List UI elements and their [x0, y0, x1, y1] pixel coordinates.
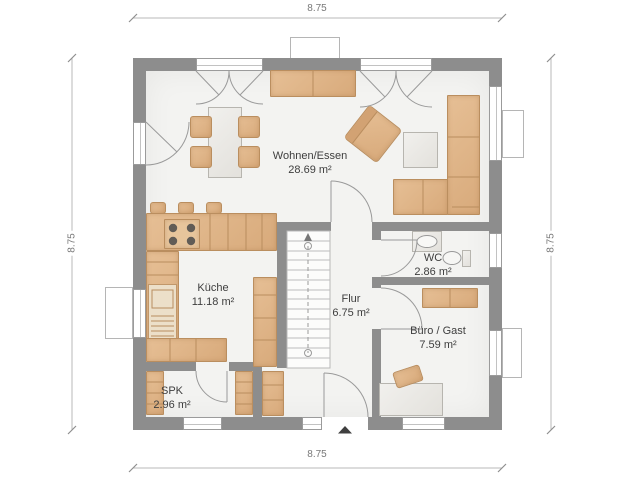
wall-right-4 — [489, 376, 502, 430]
dimension-top: 8.75 — [304, 3, 329, 14]
room-area: 7.59 m² — [410, 338, 466, 352]
wc-toilet-tank — [462, 250, 471, 267]
room-area: 28.69 m² — [273, 163, 347, 177]
dining-chair — [238, 146, 260, 168]
room-area: 2.96 m² — [153, 398, 190, 412]
dining-chair — [190, 146, 212, 168]
kitchen-sink — [148, 284, 177, 340]
dining-chair — [190, 116, 212, 138]
sofa-section-vertical — [447, 95, 480, 215]
dimension-bottom: 8.75 — [304, 449, 329, 460]
window-entry-side — [302, 417, 322, 430]
stove — [164, 219, 200, 249]
bar-stool — [150, 202, 166, 214]
wall-left-1 — [133, 58, 146, 122]
desk — [379, 383, 443, 416]
wall-living-hall-left — [277, 222, 331, 231]
bar-stool — [178, 202, 194, 214]
bar-stool — [206, 202, 222, 214]
buero-sideboard — [422, 288, 478, 308]
room-name: Büro / Gast — [410, 324, 466, 338]
wall-spk-flur — [253, 362, 262, 417]
room-label-spk: SPK 2.96 m² — [153, 384, 190, 412]
window-wc — [489, 233, 502, 268]
spk-shelf-right — [235, 371, 253, 415]
room-name: WC — [414, 251, 451, 265]
entrance-arrow — [338, 426, 352, 434]
window-living — [489, 86, 502, 161]
window-terrace-left — [196, 58, 263, 71]
wall-right-2 — [489, 161, 502, 233]
room-name: Flur — [332, 292, 369, 306]
wall-flur-wc-b — [372, 277, 381, 288]
window-terrace-right — [360, 58, 432, 71]
kitchen-tall-units — [253, 277, 277, 367]
wc-sink — [412, 231, 442, 252]
hall-wardrobe — [262, 371, 284, 416]
sill-living — [502, 110, 524, 158]
sofa-section-horizontal — [393, 179, 448, 215]
window-dining — [133, 122, 146, 165]
room-name: SPK — [153, 384, 190, 398]
sill-buero — [502, 328, 522, 378]
room-name: Wohnen/Essen — [273, 149, 347, 163]
wall-left-2 — [133, 165, 146, 289]
room-area: 11.18 m² — [192, 295, 235, 309]
wall-flur-wc-a — [372, 231, 381, 240]
room-label-buero: Büro / Gast 7.59 m² — [410, 324, 466, 352]
floor-plan: 8.75 8.75 8.75 8.75 Wohnen/Essen 28.69 m… — [0, 0, 640, 480]
wall-right-3 — [489, 268, 502, 330]
wall-bottom-2 — [222, 417, 302, 430]
chimney-stub — [290, 37, 340, 60]
window-kueche — [133, 289, 146, 338]
sideboard — [270, 70, 356, 97]
window-buero-right — [489, 330, 502, 376]
wall-stairwell — [277, 231, 287, 368]
coffee-table — [403, 132, 438, 168]
room-label-flur: Flur 6.75 m² — [332, 292, 369, 320]
room-name: Küche — [192, 281, 235, 295]
wall-bottom-1 — [133, 417, 183, 430]
room-area: 2.86 m² — [414, 265, 451, 279]
wall-bottom-3 — [368, 417, 402, 430]
room-label-wc: WC 2.86 m² — [414, 251, 451, 279]
window-spk — [183, 417, 222, 430]
dining-table — [208, 107, 242, 178]
room-label-wohnen: Wohnen/Essen 28.69 m² — [273, 149, 347, 177]
room-area: 6.75 m² — [332, 306, 369, 320]
wall-right-1 — [489, 58, 502, 86]
wall-living-hall-right — [372, 222, 489, 231]
room-label-kueche: Küche 11.18 m² — [192, 281, 235, 309]
dining-chair — [238, 116, 260, 138]
sill-kueche — [105, 287, 133, 339]
wall-kueche-spk-a — [146, 362, 196, 371]
dimension-left: 8.75 — [67, 230, 78, 255]
window-buero-bottom — [402, 417, 445, 430]
kitchen-counter-bottom — [146, 338, 227, 362]
dimension-right: 8.75 — [546, 230, 557, 255]
